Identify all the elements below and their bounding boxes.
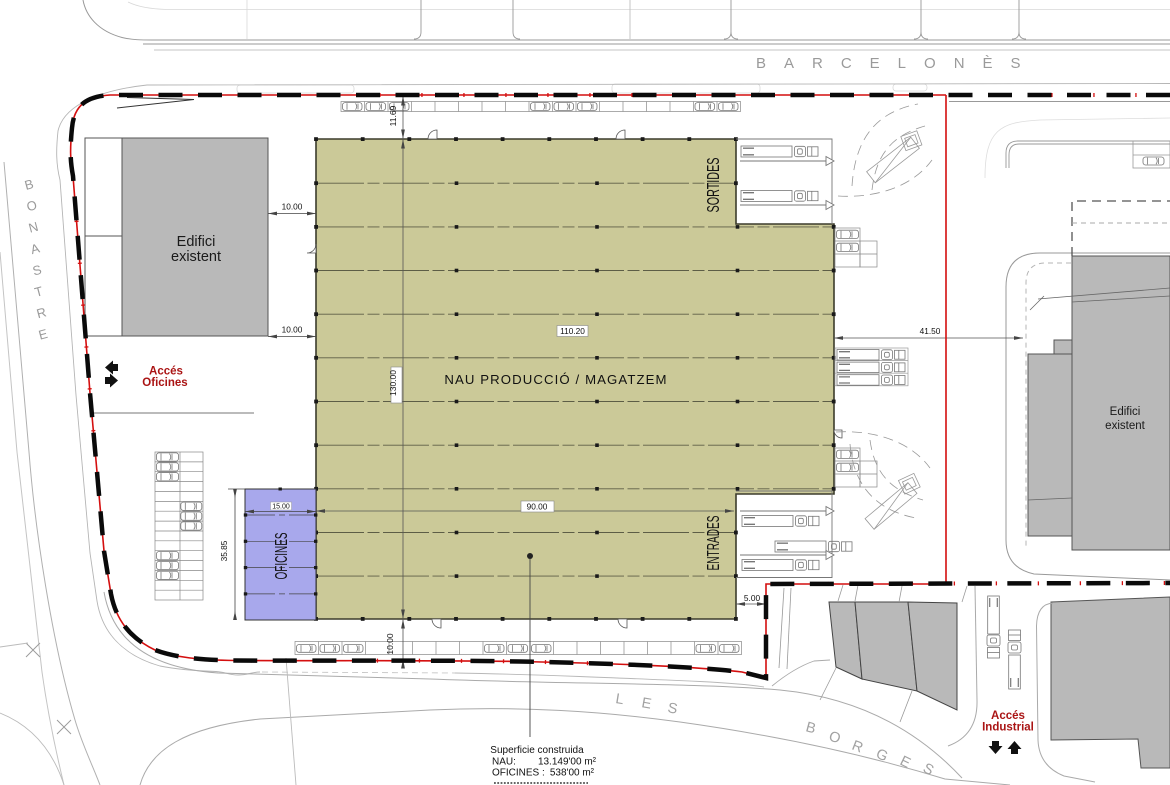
svg-text:BARCELONÈS: BARCELONÈS [756, 55, 1039, 72]
svg-text:OFICINES :: OFICINES : [492, 768, 545, 779]
svg-text:NAU:: NAU: [492, 757, 516, 768]
svg-text:130.00: 130.00 [388, 370, 398, 396]
svg-text:Edifici: Edifici [177, 234, 216, 250]
svg-text:NAU PRODUCCIÓ / MAGATZEM: NAU PRODUCCIÓ / MAGATZEM [444, 372, 667, 387]
svg-text:Superficie construida: Superficie construida [490, 745, 584, 756]
svg-text:538'00 m²: 538'00 m² [550, 768, 595, 779]
svg-text:11.69: 11.69 [388, 105, 398, 126]
svg-text:90.00: 90.00 [527, 502, 548, 512]
svg-text:35.85: 35.85 [219, 540, 229, 561]
svg-text:existent: existent [171, 249, 221, 265]
svg-text:Edifici: Edifici [1110, 406, 1141, 418]
svg-text:ENTRADES: ENTRADES [703, 516, 723, 571]
svg-text:41.50: 41.50 [920, 326, 941, 336]
svg-text:Accés: Accés [149, 366, 183, 378]
svg-text:OFICINES: OFICINES [271, 533, 291, 580]
svg-text:15.00: 15.00 [272, 503, 290, 510]
svg-text:SORTIDES: SORTIDES [703, 158, 723, 213]
svg-text:Industrial: Industrial [982, 722, 1034, 734]
svg-text:110.20: 110.20 [560, 326, 585, 336]
svg-text:Accés: Accés [991, 710, 1025, 722]
svg-text:10.00: 10.00 [282, 325, 303, 335]
svg-text:10.00: 10.00 [385, 633, 395, 655]
svg-text:13.149'00 m²: 13.149'00 m² [538, 757, 597, 768]
svg-text:5.00: 5.00 [744, 593, 761, 603]
svg-text:existent: existent [1105, 420, 1145, 432]
svg-text:10.00: 10.00 [282, 202, 303, 212]
svg-text:Oficines: Oficines [142, 377, 187, 389]
